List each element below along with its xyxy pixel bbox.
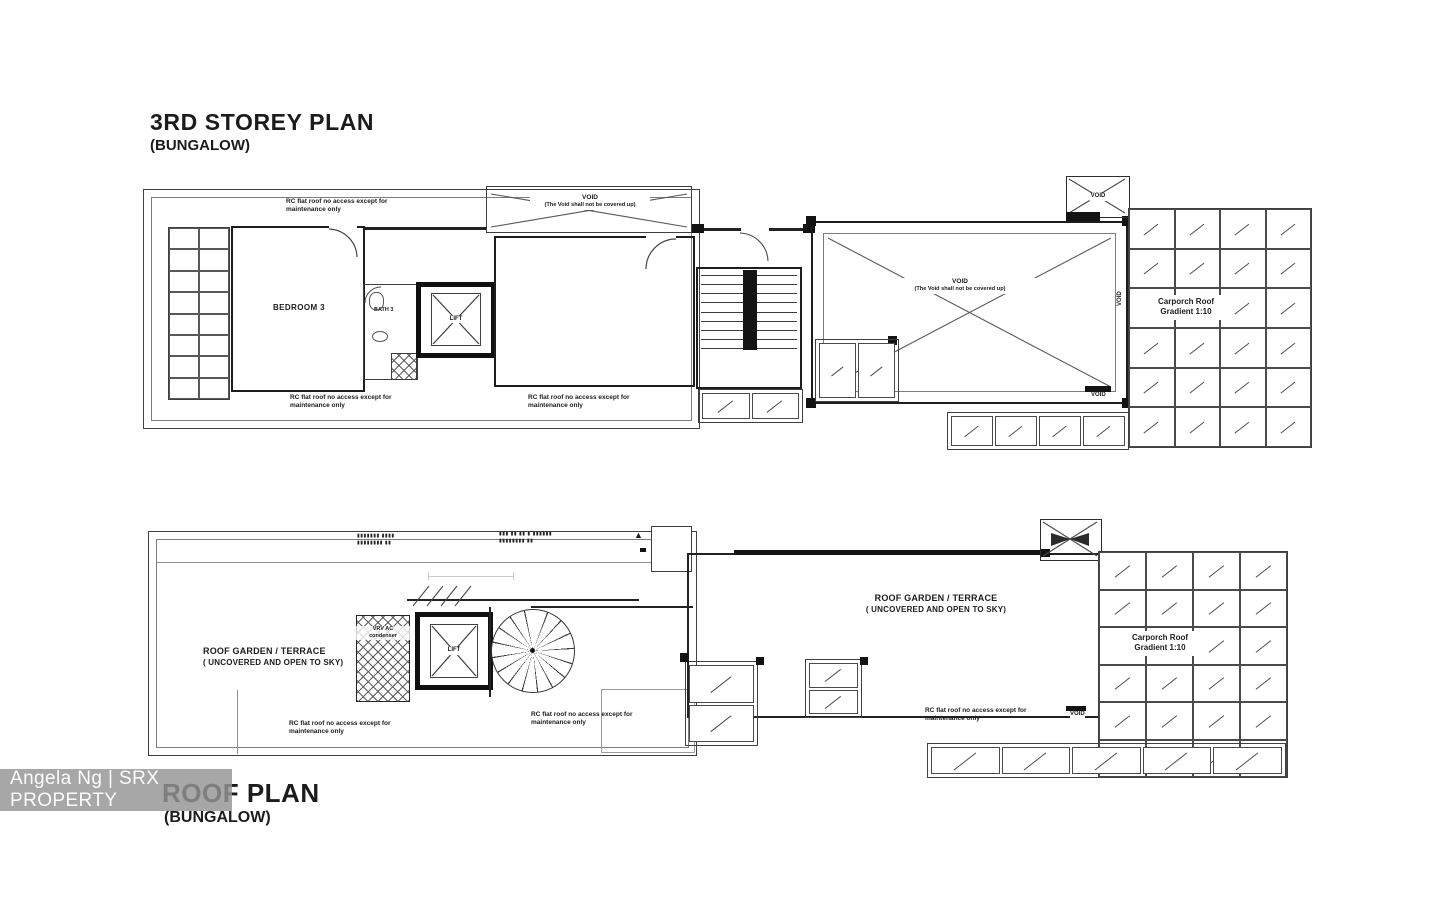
- roof-tile: [1129, 368, 1175, 408]
- roof-tile: [1175, 328, 1221, 368]
- roof-tile: [1146, 552, 1193, 590]
- roof-tile: [702, 393, 750, 419]
- roof-tile: [689, 705, 754, 743]
- illegible-line: ▮▮▮▮▮▮▮ ▮▮▮▮: [357, 533, 395, 540]
- bottom-roof-strip: [947, 412, 1129, 450]
- roof-top-strip-line: [157, 562, 688, 563]
- roof-tile: [1099, 702, 1146, 740]
- roof-skylight-x: [1041, 520, 1099, 558]
- roof-tile: [1099, 590, 1146, 628]
- watermark: Angela Ng | SRX PROPERTY: [0, 769, 232, 811]
- louver-cell: [199, 356, 229, 377]
- roof-tile: [931, 747, 1000, 774]
- stair-landing-tiles: [698, 389, 803, 423]
- roof-tile: [1266, 209, 1312, 249]
- marker-triangle-icon: ▲: [634, 530, 643, 542]
- roof-tile: [1240, 665, 1287, 703]
- glass-bay-2: [805, 659, 862, 718]
- vrv-line1: VRV AC: [356, 626, 410, 633]
- roof-bottom-strip: [927, 743, 1286, 778]
- skylight-void-label: VOID: [1090, 193, 1107, 201]
- vrv-condenser-label: VRV AC condenser: [356, 626, 410, 640]
- roof-tile: [1175, 368, 1221, 408]
- louver-cell: [199, 292, 229, 313]
- roof-garden-right-label: ROOF GARDEN / TERRACE ( UNCOVERED AND OP…: [816, 593, 1056, 615]
- top-edge-panel: [651, 526, 692, 572]
- bedroom3-label: BEDROOM 3: [249, 303, 349, 313]
- garden-line1: ROOF GARDEN / TERRACE: [203, 646, 343, 658]
- louver-cell: [199, 378, 229, 399]
- rc-roof-note-top: RC flat roof no access except for mainte…: [286, 198, 388, 215]
- illegible-line: ▮▮▮▮▮▮▮▮ ▮▮: [357, 540, 395, 547]
- roof-tile: [689, 665, 754, 703]
- void-strip-label: VOID (The Void shall not be covered up): [530, 194, 650, 210]
- roof-tile: [951, 416, 993, 446]
- roof-tile: [1213, 747, 1282, 774]
- rc-note-line2: maintenance only: [528, 402, 630, 410]
- carporch-label-line2: Gradient 1:10: [1112, 643, 1208, 653]
- roof-tile: [1193, 702, 1240, 740]
- wall-chunk: [756, 657, 764, 665]
- bedroom3-door-arc: [328, 228, 358, 258]
- roof-tile: [1220, 328, 1266, 368]
- roof-top-bar: [734, 550, 1046, 555]
- roof-lift-car: LIFT: [430, 624, 478, 678]
- rc-note-line1: RC flat roof no access except for: [531, 711, 633, 719]
- illegible-line: ▮▮▮ ▮▮ ▮▮ ▮ ▮▮▮▮▮▮: [499, 531, 552, 538]
- roof-tile: [1240, 590, 1287, 628]
- carporch-label-line2: Gradient 1:10: [1139, 307, 1233, 317]
- void-room-title: VOID: [880, 278, 1040, 286]
- rc-roof-note-roofplan-mid: RC flat roof no access except for mainte…: [531, 711, 633, 728]
- louver-cell: [199, 271, 229, 292]
- roof-tile: [1266, 328, 1312, 368]
- roof-lift-label: LIFT: [447, 647, 462, 655]
- rc-note-line2: maintenance only: [289, 728, 391, 736]
- louver-cell: [169, 249, 199, 270]
- louver-cell: [169, 356, 199, 377]
- sink-fixture: [372, 331, 388, 342]
- garden-line2: ( UNCOVERED AND OPEN TO SKY): [203, 658, 343, 668]
- roof-tile: [1146, 702, 1193, 740]
- void-strip-title: VOID: [530, 194, 650, 202]
- faint-dimension-tick: [513, 572, 514, 580]
- rc-roof-note-roofplan-left: RC flat roof no access except for mainte…: [289, 720, 391, 737]
- rc-roof-note-roofplan-right: RC flat roof no access except for mainte…: [925, 707, 1027, 724]
- illegible-line: ▮▮▮▮▮▮▮▮ ▮▮: [499, 538, 552, 545]
- stair-stringer: [743, 270, 757, 350]
- spiral-center-dot: [530, 648, 535, 653]
- shower-area: [391, 353, 417, 380]
- spiral-wall-h: [531, 606, 693, 608]
- lift-car: LIFT: [431, 293, 481, 346]
- roof-tile: [1129, 328, 1175, 368]
- illegible-note-1: ▮▮▮▮▮▮▮ ▮▮▮▮ ▮▮▮▮▮▮▮▮ ▮▮: [357, 533, 395, 546]
- carporch-roof-grid: [1128, 208, 1312, 448]
- louver-cell: [169, 335, 199, 356]
- roof-tile: [809, 663, 858, 688]
- roof-tile: [1129, 249, 1175, 289]
- carporch-label-line1: Carporch Roof: [1112, 633, 1208, 643]
- rc-roof-note-line1: RC flat roof no access except for: [286, 198, 388, 206]
- rc-note-line1: RC flat roof no access except for: [290, 394, 392, 402]
- louver-cell: [199, 228, 229, 249]
- void-strip-note: (The Void shall not be covered up): [530, 202, 650, 209]
- storey-plan-title: 3RD STOREY PLAN: [150, 108, 374, 138]
- roof-tile: [1039, 416, 1081, 446]
- wall-chunk: [692, 224, 704, 233]
- roof-tile: [1002, 747, 1071, 774]
- wall-chunk: [860, 657, 868, 665]
- rc-note-line1: RC flat roof no access except for: [925, 707, 1027, 715]
- louver-cell: [169, 314, 199, 335]
- roof-tile: [1240, 552, 1287, 590]
- lift-label: LIFT: [449, 316, 464, 324]
- roof-tile: [1266, 368, 1312, 408]
- roof-tile: [1220, 209, 1266, 249]
- roof-tile: [1175, 407, 1221, 447]
- vrv-line2: condenser: [356, 633, 410, 640]
- void-side-label: VOID: [1117, 266, 1125, 306]
- wall-chunk: [806, 216, 816, 226]
- roof-tile: [1129, 209, 1175, 249]
- illegible-note-2: ▮▮▮ ▮▮ ▮▮ ▮ ▮▮▮▮▮▮ ▮▮▮▮▮▮▮▮ ▮▮: [499, 531, 552, 544]
- roof-void-small-label: VOID: [1070, 711, 1085, 719]
- louver-cell: [169, 228, 199, 249]
- roof-tile: [1266, 249, 1312, 289]
- louver-cell: [199, 249, 229, 270]
- roof-tile: [1129, 407, 1175, 447]
- roof-tile: [1193, 552, 1240, 590]
- roof-slope-hatch: [409, 584, 479, 608]
- marker-tick: [640, 548, 646, 552]
- void-room-label: VOID (The Void shall not be covered up): [880, 278, 1040, 294]
- glass-roof-tiles: [815, 339, 899, 402]
- rc-roof-note-bottom-mid: RC flat roof no access except for mainte…: [528, 394, 630, 411]
- rc-roof-note-bottom-left: RC flat roof no access except for mainte…: [290, 394, 392, 411]
- roof-tile: [1083, 416, 1125, 446]
- bath3-door-arc: [364, 286, 382, 304]
- rc-note-line1: RC flat roof no access except for: [289, 720, 391, 728]
- roof-tile: [1220, 249, 1266, 289]
- roof-tile: [1193, 665, 1240, 703]
- roof-tile: [1220, 368, 1266, 408]
- roof-tile: [1175, 249, 1221, 289]
- louver-cell: [199, 314, 229, 335]
- middle-room-door-arc: [645, 238, 677, 270]
- roof-carporch-label: Carporch Roof Gradient 1:10: [1112, 631, 1208, 656]
- watermark-text: Angela Ng | SRX PROPERTY: [10, 768, 232, 812]
- stair-door-arc: [739, 232, 769, 262]
- carporch-label-line1: Carporch Roof: [1139, 297, 1233, 307]
- rc-note-line1: RC flat roof no access except for: [528, 394, 630, 402]
- wall-segment: [365, 227, 486, 230]
- roof-tile: [819, 343, 856, 398]
- roof-tile: [1240, 627, 1287, 665]
- louver-cell: [169, 378, 199, 399]
- roof-skylight-box: [1040, 519, 1102, 561]
- rc-note-line2: maintenance only: [290, 402, 392, 410]
- glass-bay-1: [685, 661, 758, 746]
- roof-tile: [995, 416, 1037, 446]
- rc-note-line2: maintenance only: [531, 719, 633, 727]
- storey-plan-subtitle: (BUNGALOW): [150, 136, 250, 156]
- faint-dimension-line: [428, 576, 514, 577]
- rc-note-line2: maintenance only: [925, 715, 1027, 723]
- roof-tile: [1266, 288, 1312, 328]
- void-small-label: VOID: [1091, 392, 1106, 400]
- step-line: [237, 690, 238, 754]
- louver-cell: [169, 292, 199, 313]
- roof-tile: [752, 393, 800, 419]
- louver-strip: [168, 227, 230, 400]
- roof-tile: [858, 343, 895, 398]
- faint-dimension-tick: [428, 572, 429, 580]
- roof-tile: [1175, 209, 1221, 249]
- wall-chunk: [680, 653, 689, 662]
- roof-tile: [1143, 747, 1212, 774]
- wall-chunk: [1066, 212, 1100, 221]
- roof-tile: [1146, 665, 1193, 703]
- roof-tile: [1193, 590, 1240, 628]
- rc-roof-note-line2: maintenance only: [286, 206, 388, 214]
- roof-tile: [1146, 590, 1193, 628]
- garden-line1: ROOF GARDEN / TERRACE: [816, 593, 1056, 605]
- roof-tile: [809, 690, 858, 715]
- roof-tile: [1099, 552, 1146, 590]
- garden-line2: ( UNCOVERED AND OPEN TO SKY): [816, 605, 1056, 615]
- roof-tile: [1072, 747, 1141, 774]
- louver-cell: [169, 271, 199, 292]
- roof-tile: [1099, 665, 1146, 703]
- louver-cell: [199, 335, 229, 356]
- roof-tile: [1240, 702, 1287, 740]
- roof-tile: [1220, 407, 1266, 447]
- void-room-note: (The Void shall not be covered up): [880, 286, 1040, 293]
- roof-tile: [1266, 407, 1312, 447]
- roof-garden-left-label: ROOF GARDEN / TERRACE ( UNCOVERED AND OP…: [203, 646, 343, 668]
- carporch-roof-label: Carporch Roof Gradient 1:10: [1139, 295, 1233, 320]
